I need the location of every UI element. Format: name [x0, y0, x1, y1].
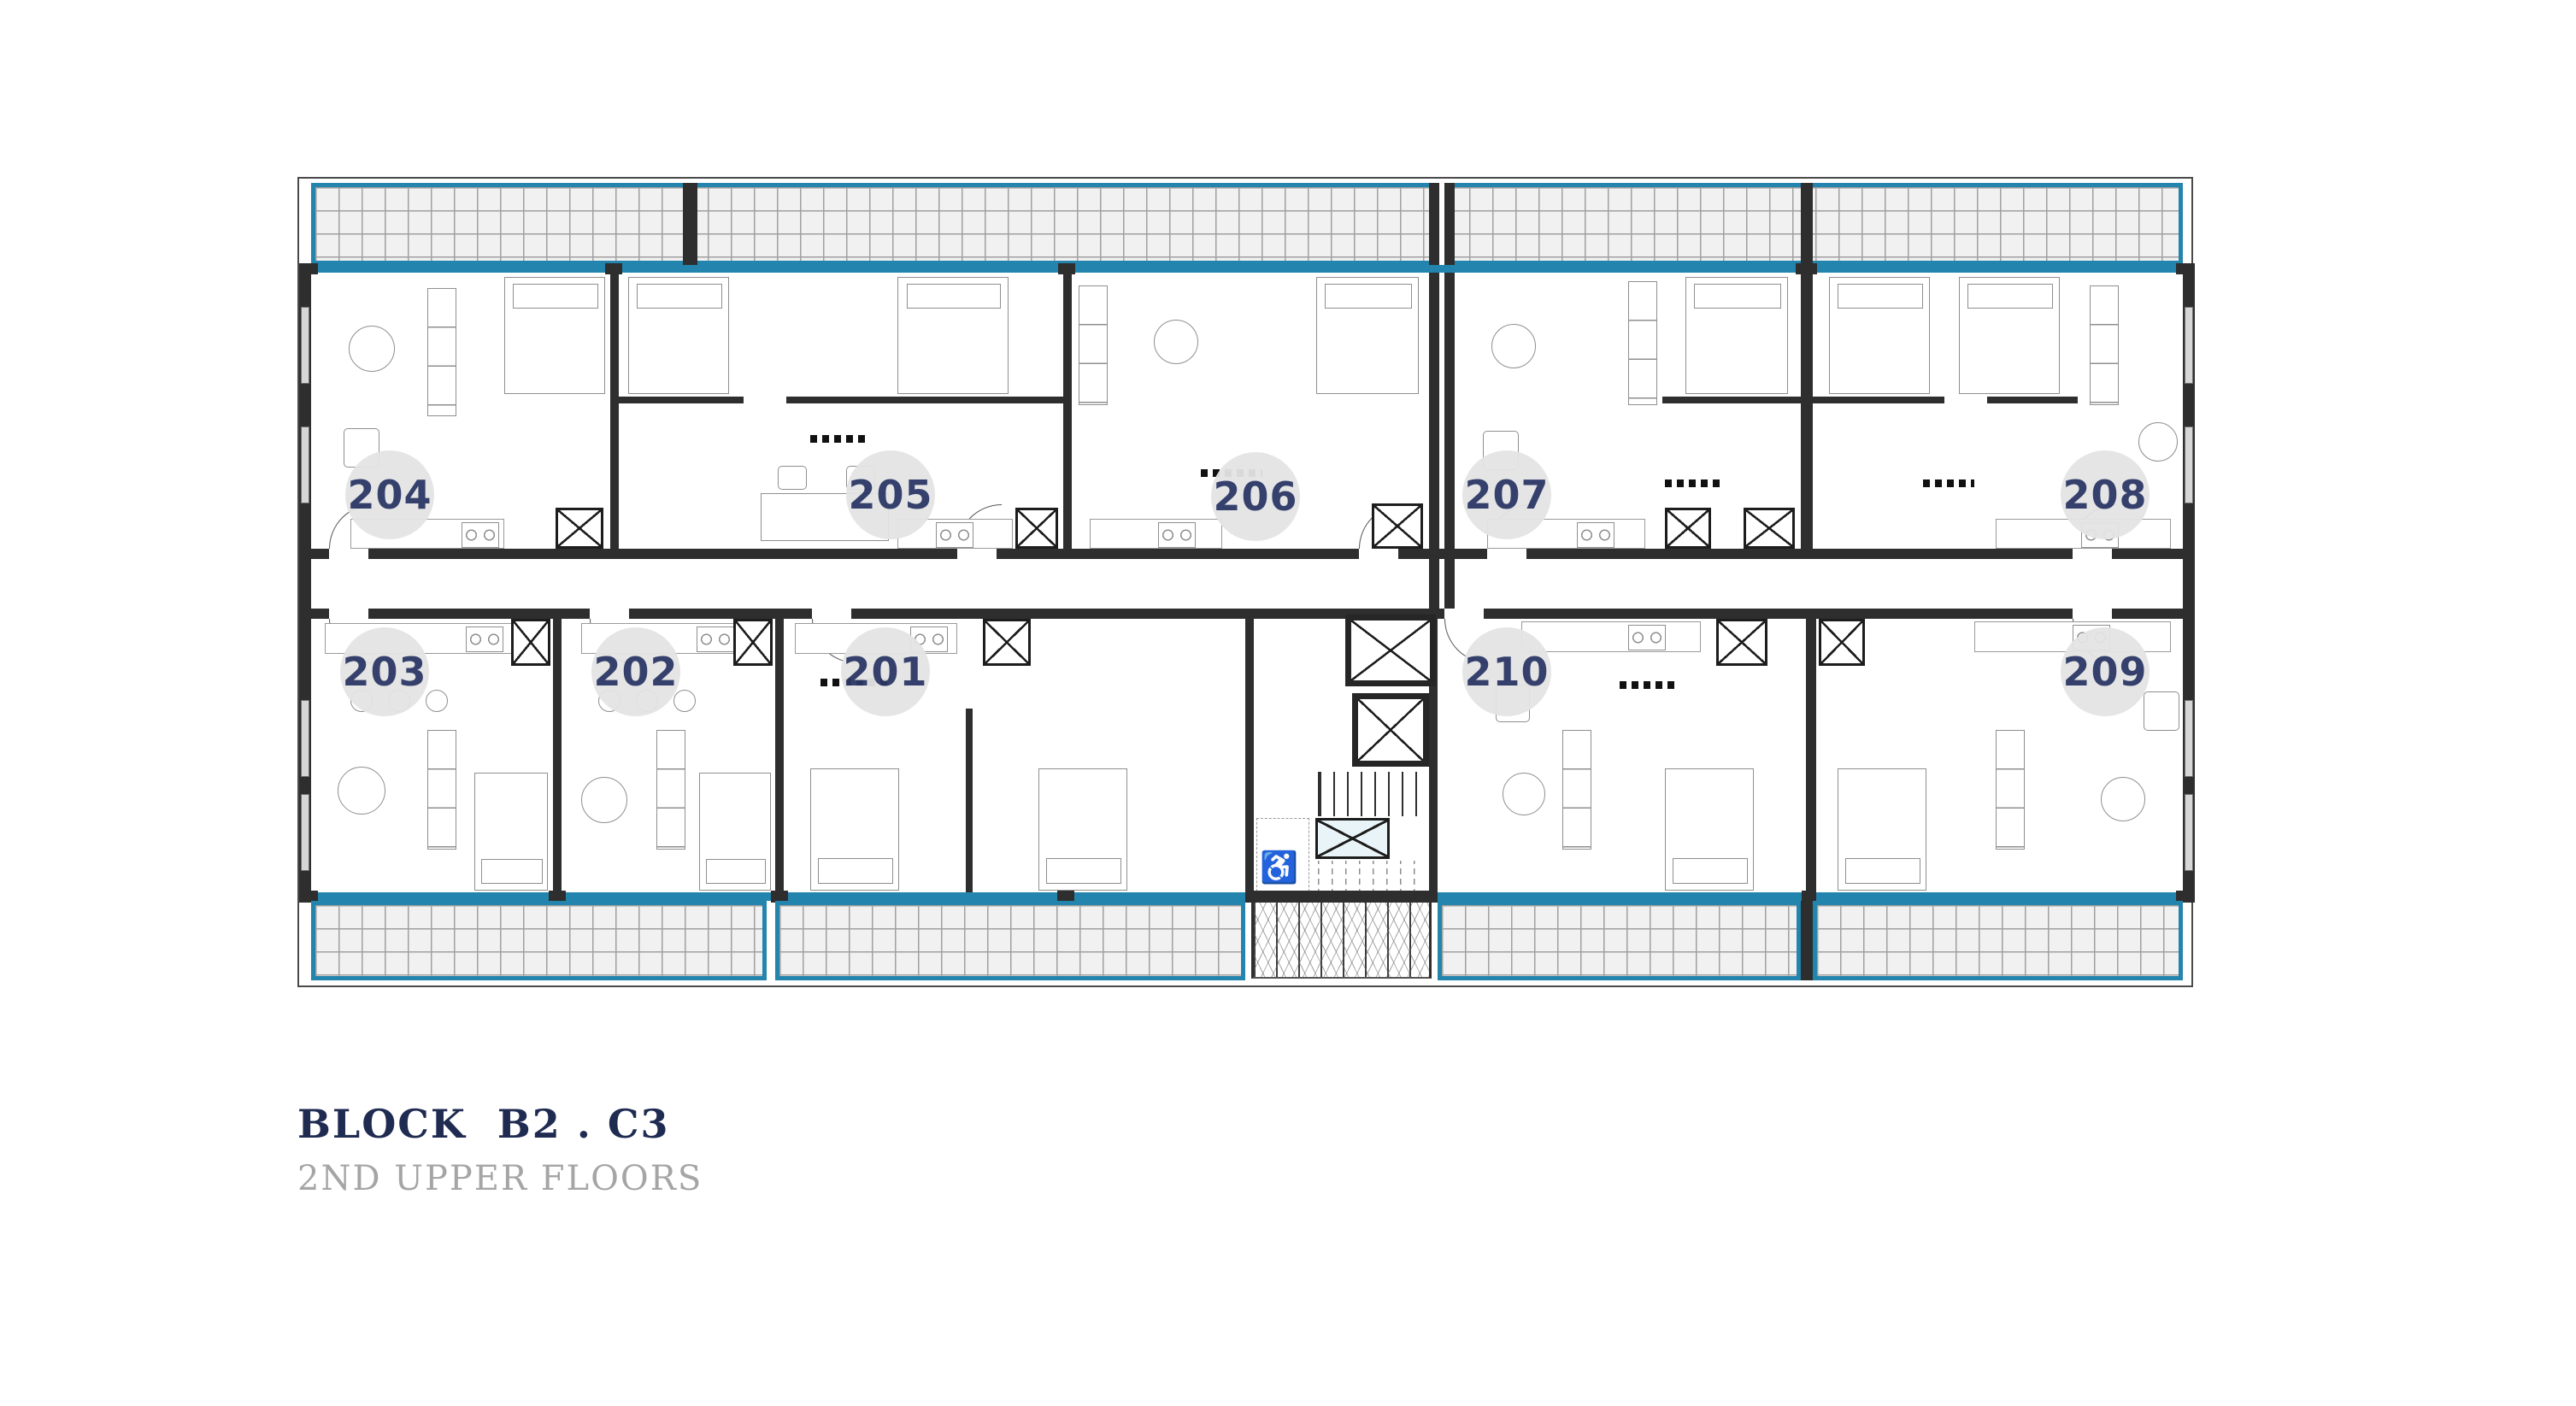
- stove-icon: [462, 522, 499, 548]
- unit-number: 206: [1213, 474, 1297, 520]
- shaft-icon: [556, 508, 603, 549]
- table-icon: [338, 767, 385, 815]
- block-title: BLOCK B2 . C3: [297, 1101, 703, 1147]
- unit-label-207: 207: [1462, 450, 1551, 539]
- caption-block: BLOCK B2 . C3 2ND UPPER FLOORS: [297, 1101, 703, 1198]
- louver-screen: [1251, 903, 1432, 979]
- stair-base-wall: [1245, 891, 1438, 903]
- side-window: [2185, 427, 2193, 503]
- shaft-icon: [1744, 508, 1795, 549]
- bottom-balcony: [1438, 901, 1801, 980]
- shaft-icon: [1372, 503, 1423, 549]
- floor-subtitle: 2ND UPPER FLOORS: [297, 1159, 703, 1198]
- kitchen-counter: [1090, 519, 1222, 549]
- balcony-divider: [1801, 901, 1813, 980]
- window-band-top: [311, 265, 2183, 273]
- balcony-divider: [1801, 183, 1813, 265]
- wheelchair-icon: ♿: [1260, 852, 1298, 883]
- bed-icon: [1959, 277, 2060, 394]
- bed-icon: [1685, 277, 1788, 394]
- bed-icon: [474, 773, 548, 891]
- sofa-icon: [427, 730, 456, 850]
- door-gap: [1444, 609, 1484, 619]
- unit-label-206: 206: [1211, 452, 1300, 541]
- sofa-icon: [2090, 285, 2119, 405]
- unit-label-201: 201: [841, 627, 930, 716]
- chair-icon: [778, 466, 807, 490]
- shaft-icon: [1665, 508, 1711, 549]
- balcony-divider: [683, 183, 697, 265]
- side-window: [301, 794, 309, 871]
- stove-icon: [697, 627, 734, 652]
- door-gap: [329, 549, 368, 559]
- party-wall: [1801, 273, 1813, 559]
- bed-icon: [1038, 768, 1127, 891]
- table-icon: [1503, 773, 1545, 815]
- kitchen-counter: [1521, 621, 1701, 652]
- armchair-icon: [2144, 691, 2179, 731]
- stove-icon: [1158, 522, 1196, 548]
- door-gap: [329, 609, 368, 619]
- room-wall: [966, 709, 973, 892]
- bed-icon: [1838, 768, 1926, 891]
- stairs-icon: [1318, 772, 1424, 816]
- party-wall: [1806, 619, 1816, 901]
- bottom-balcony: [775, 901, 1245, 980]
- unit-label-210: 210: [1462, 627, 1551, 716]
- side-window: [2185, 794, 2193, 871]
- bed-icon: [897, 277, 1009, 394]
- elevator-icon: [1352, 693, 1429, 767]
- bottom-balcony: [311, 901, 767, 980]
- shaft-icon: [983, 619, 1031, 666]
- table-icon: [2138, 422, 2178, 462]
- door-gap: [957, 549, 997, 559]
- bed-icon: [504, 277, 605, 394]
- table-icon: [1491, 324, 1536, 368]
- shaft-icon: [511, 619, 550, 666]
- unit-label-203: 203: [340, 627, 429, 716]
- sofa-icon: [1628, 281, 1657, 405]
- table-icon: [2101, 777, 2145, 821]
- door-gap: [1944, 397, 1987, 403]
- floor-plan: ♿: [297, 177, 2193, 987]
- unit-number: 204: [347, 472, 432, 518]
- top-balcony: [311, 183, 2183, 265]
- shaft-icon: [733, 619, 773, 666]
- wardrobe-icon: [1665, 479, 1721, 487]
- unit-number: 210: [1464, 649, 1549, 695]
- wardrobe-icon: [1620, 681, 1676, 689]
- table-icon: [1154, 320, 1198, 364]
- party-wall: [775, 619, 784, 901]
- stove-icon: [936, 522, 973, 548]
- unit-number: 201: [843, 649, 927, 695]
- sofa-icon: [427, 288, 456, 416]
- side-window: [2185, 700, 2193, 777]
- unit-label-209: 209: [2061, 627, 2150, 716]
- unit-label-202: 202: [591, 627, 680, 716]
- room-wall: [619, 397, 1063, 403]
- bed-icon: [1316, 277, 1419, 394]
- stove-icon: [466, 627, 503, 652]
- corridor-wall-bottom: [299, 609, 2195, 619]
- door-gap: [2073, 609, 2112, 619]
- party-wall: [553, 619, 562, 901]
- unit-label-204: 204: [345, 450, 434, 539]
- core-wall-left: [1245, 619, 1254, 901]
- door-gap: [812, 609, 851, 619]
- door-gap: [2073, 549, 2112, 559]
- unit-label-205: 205: [846, 450, 935, 539]
- bed-icon: [1829, 277, 1930, 394]
- sofa-icon: [1079, 285, 1108, 405]
- unit-number: 208: [2062, 472, 2147, 518]
- sofa-icon: [1562, 730, 1591, 850]
- bottom-balcony: [1813, 901, 2183, 980]
- side-window: [2185, 307, 2193, 384]
- bed-icon: [810, 768, 899, 891]
- unit-number: 209: [2062, 649, 2147, 695]
- door-gap: [744, 397, 786, 403]
- bed-icon: [1665, 768, 1754, 891]
- unit-number: 205: [848, 472, 932, 518]
- door-gap: [1487, 549, 1526, 559]
- wardrobe-icon: [1923, 479, 1974, 487]
- stove-icon: [1577, 522, 1614, 548]
- elevator-icon: [1345, 615, 1436, 686]
- party-wall: [1063, 273, 1072, 559]
- room-wall: [1662, 397, 1801, 403]
- shaft-icon: [1015, 508, 1058, 549]
- party-wall: [610, 273, 619, 559]
- sofa-icon: [656, 730, 685, 850]
- stool-icon: [426, 690, 448, 712]
- table-icon: [349, 326, 395, 372]
- unit-number: 207: [1464, 472, 1549, 518]
- wardrobe-icon: [810, 435, 870, 443]
- table-icon: [581, 777, 627, 823]
- stove-icon: [1628, 625, 1666, 650]
- side-window: [301, 307, 309, 384]
- unit-number: 203: [342, 649, 426, 695]
- door-gap: [590, 609, 629, 619]
- corridor-wall-top: [299, 549, 2195, 559]
- stairs-dashed: [1318, 861, 1424, 895]
- door-gap: [1359, 549, 1398, 559]
- shaft-icon: [1716, 619, 1767, 666]
- side-window: [301, 700, 309, 777]
- bed-icon: [699, 773, 771, 891]
- stair-landing: [1315, 818, 1390, 859]
- sofa-icon: [1996, 730, 2025, 850]
- bed-icon: [628, 277, 729, 394]
- unit-number: 202: [593, 649, 678, 695]
- side-window: [301, 427, 309, 503]
- unit-label-208: 208: [2061, 450, 2150, 539]
- shaft-icon: [1819, 619, 1865, 666]
